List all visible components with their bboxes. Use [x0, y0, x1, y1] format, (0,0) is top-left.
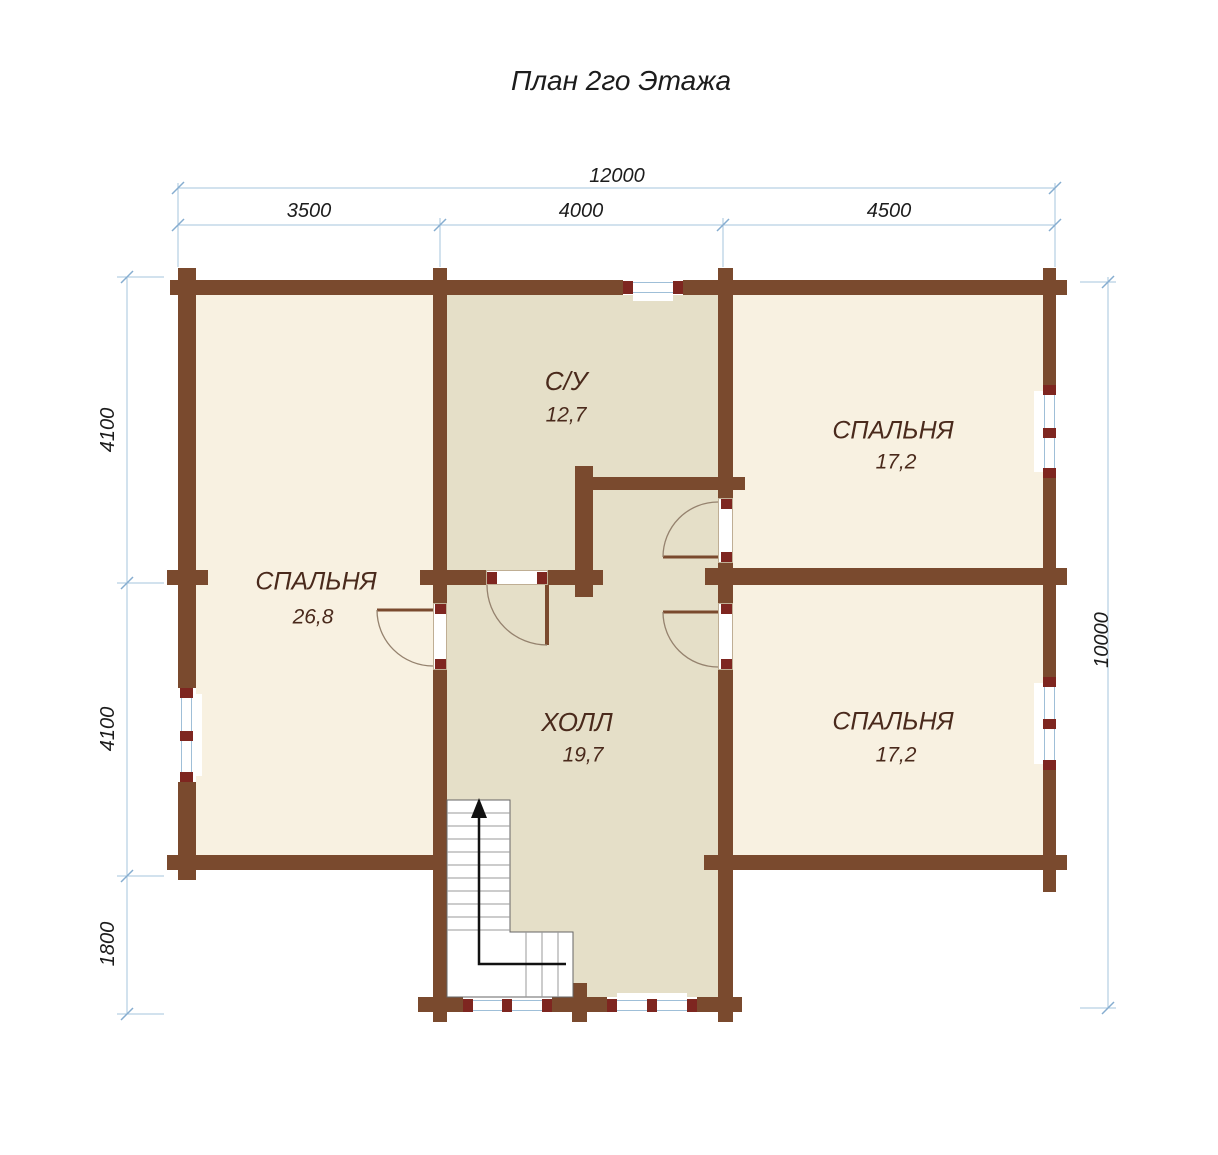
dim-right-total: 10000 — [1092, 612, 1112, 668]
door-swing-bedroom-left — [377, 610, 433, 666]
dimension-lines — [117, 183, 1116, 1014]
room-area-bedroom-left: 26,8 — [293, 607, 334, 628]
room-area-bedroom-bottom-right: 17,2 — [876, 745, 917, 766]
room-area-hall: 19,7 — [563, 745, 604, 766]
page-title: План 2го Этажа — [511, 67, 731, 95]
dim-top-total: 12000 — [589, 166, 645, 186]
room-label-bedroom-left: СПАЛЬНЯ — [255, 570, 376, 595]
floor-plan-canvas: План 2го Этажа 12000 3500 4000 4500 4100… — [0, 0, 1218, 1155]
door-swing-bedroom-top-right — [663, 502, 718, 557]
room-label-bedroom-top-right: СПАЛЬНЯ — [832, 419, 953, 444]
room-area-bedroom-top-right: 17,2 — [876, 452, 917, 473]
room-label-bedroom-bottom-right: СПАЛЬНЯ — [832, 710, 953, 735]
dim-left-segment-3: 1800 — [98, 922, 118, 967]
dim-left-segment-1: 4100 — [98, 408, 118, 453]
dimension-tick-slashes — [121, 182, 1114, 1020]
dim-top-segment-1: 3500 — [287, 201, 332, 221]
room-label-hall: ХОЛЛ — [541, 709, 612, 735]
door-swing-bathroom — [487, 585, 547, 645]
room-area-bathroom: 12,7 — [546, 405, 587, 426]
dim-left-segment-2: 4100 — [98, 707, 118, 752]
dim-top-segment-2: 4000 — [559, 201, 604, 221]
staircase — [447, 798, 573, 997]
dim-top-segment-3: 4500 — [867, 201, 912, 221]
stair-outline — [447, 800, 573, 997]
door-swing-bedroom-bottom-right — [663, 612, 718, 667]
room-label-bathroom: С/У — [545, 368, 588, 394]
